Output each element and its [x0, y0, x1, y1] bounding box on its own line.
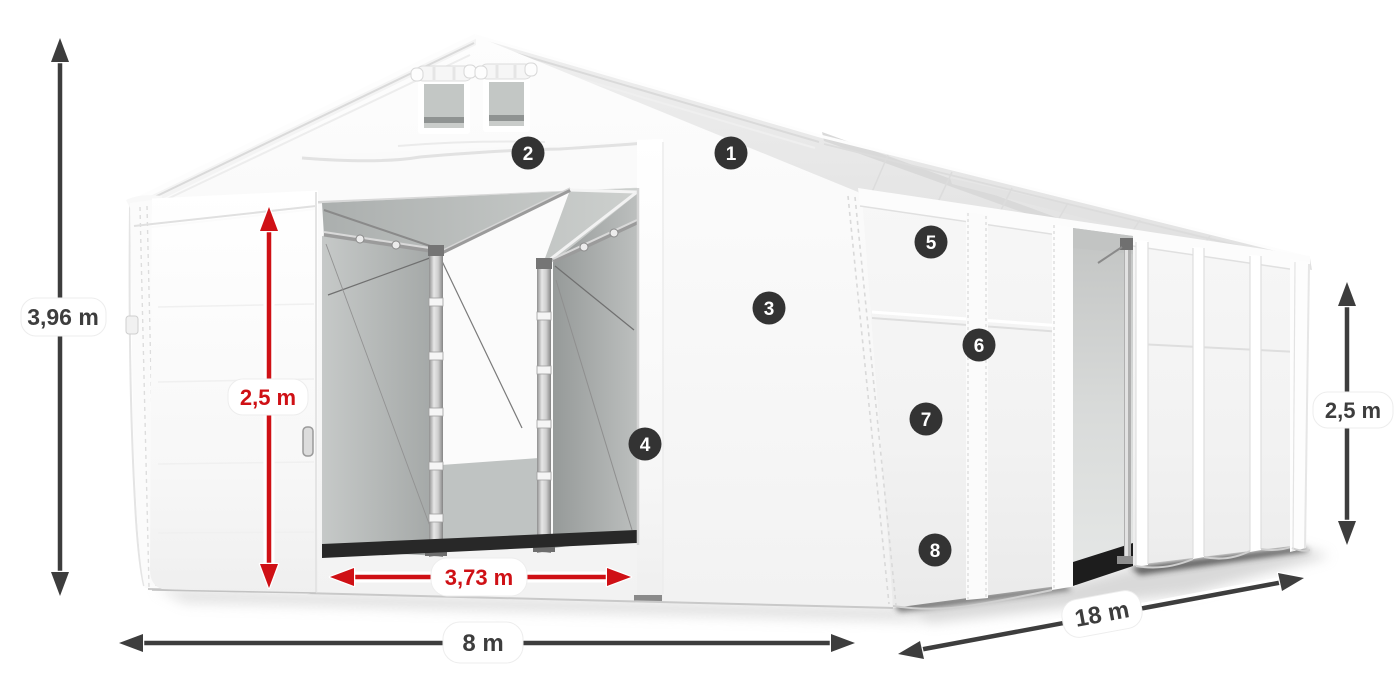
svg-text:8: 8	[930, 541, 941, 562]
svg-text:7: 7	[921, 410, 932, 431]
svg-text:2,5 m: 2,5 m	[1325, 398, 1381, 423]
svg-text:6: 6	[974, 336, 985, 357]
svg-text:3: 3	[764, 299, 775, 320]
svg-text:3,73 m: 3,73 m	[445, 565, 514, 590]
svg-text:1: 1	[726, 144, 737, 165]
svg-text:5: 5	[926, 233, 937, 254]
svg-text:3,96 m: 3,96 m	[27, 304, 99, 330]
svg-text:2,5 m: 2,5 m	[240, 385, 296, 410]
svg-text:8 m: 8 m	[462, 630, 503, 657]
svg-text:2: 2	[523, 144, 534, 165]
svg-text:4: 4	[640, 435, 651, 456]
